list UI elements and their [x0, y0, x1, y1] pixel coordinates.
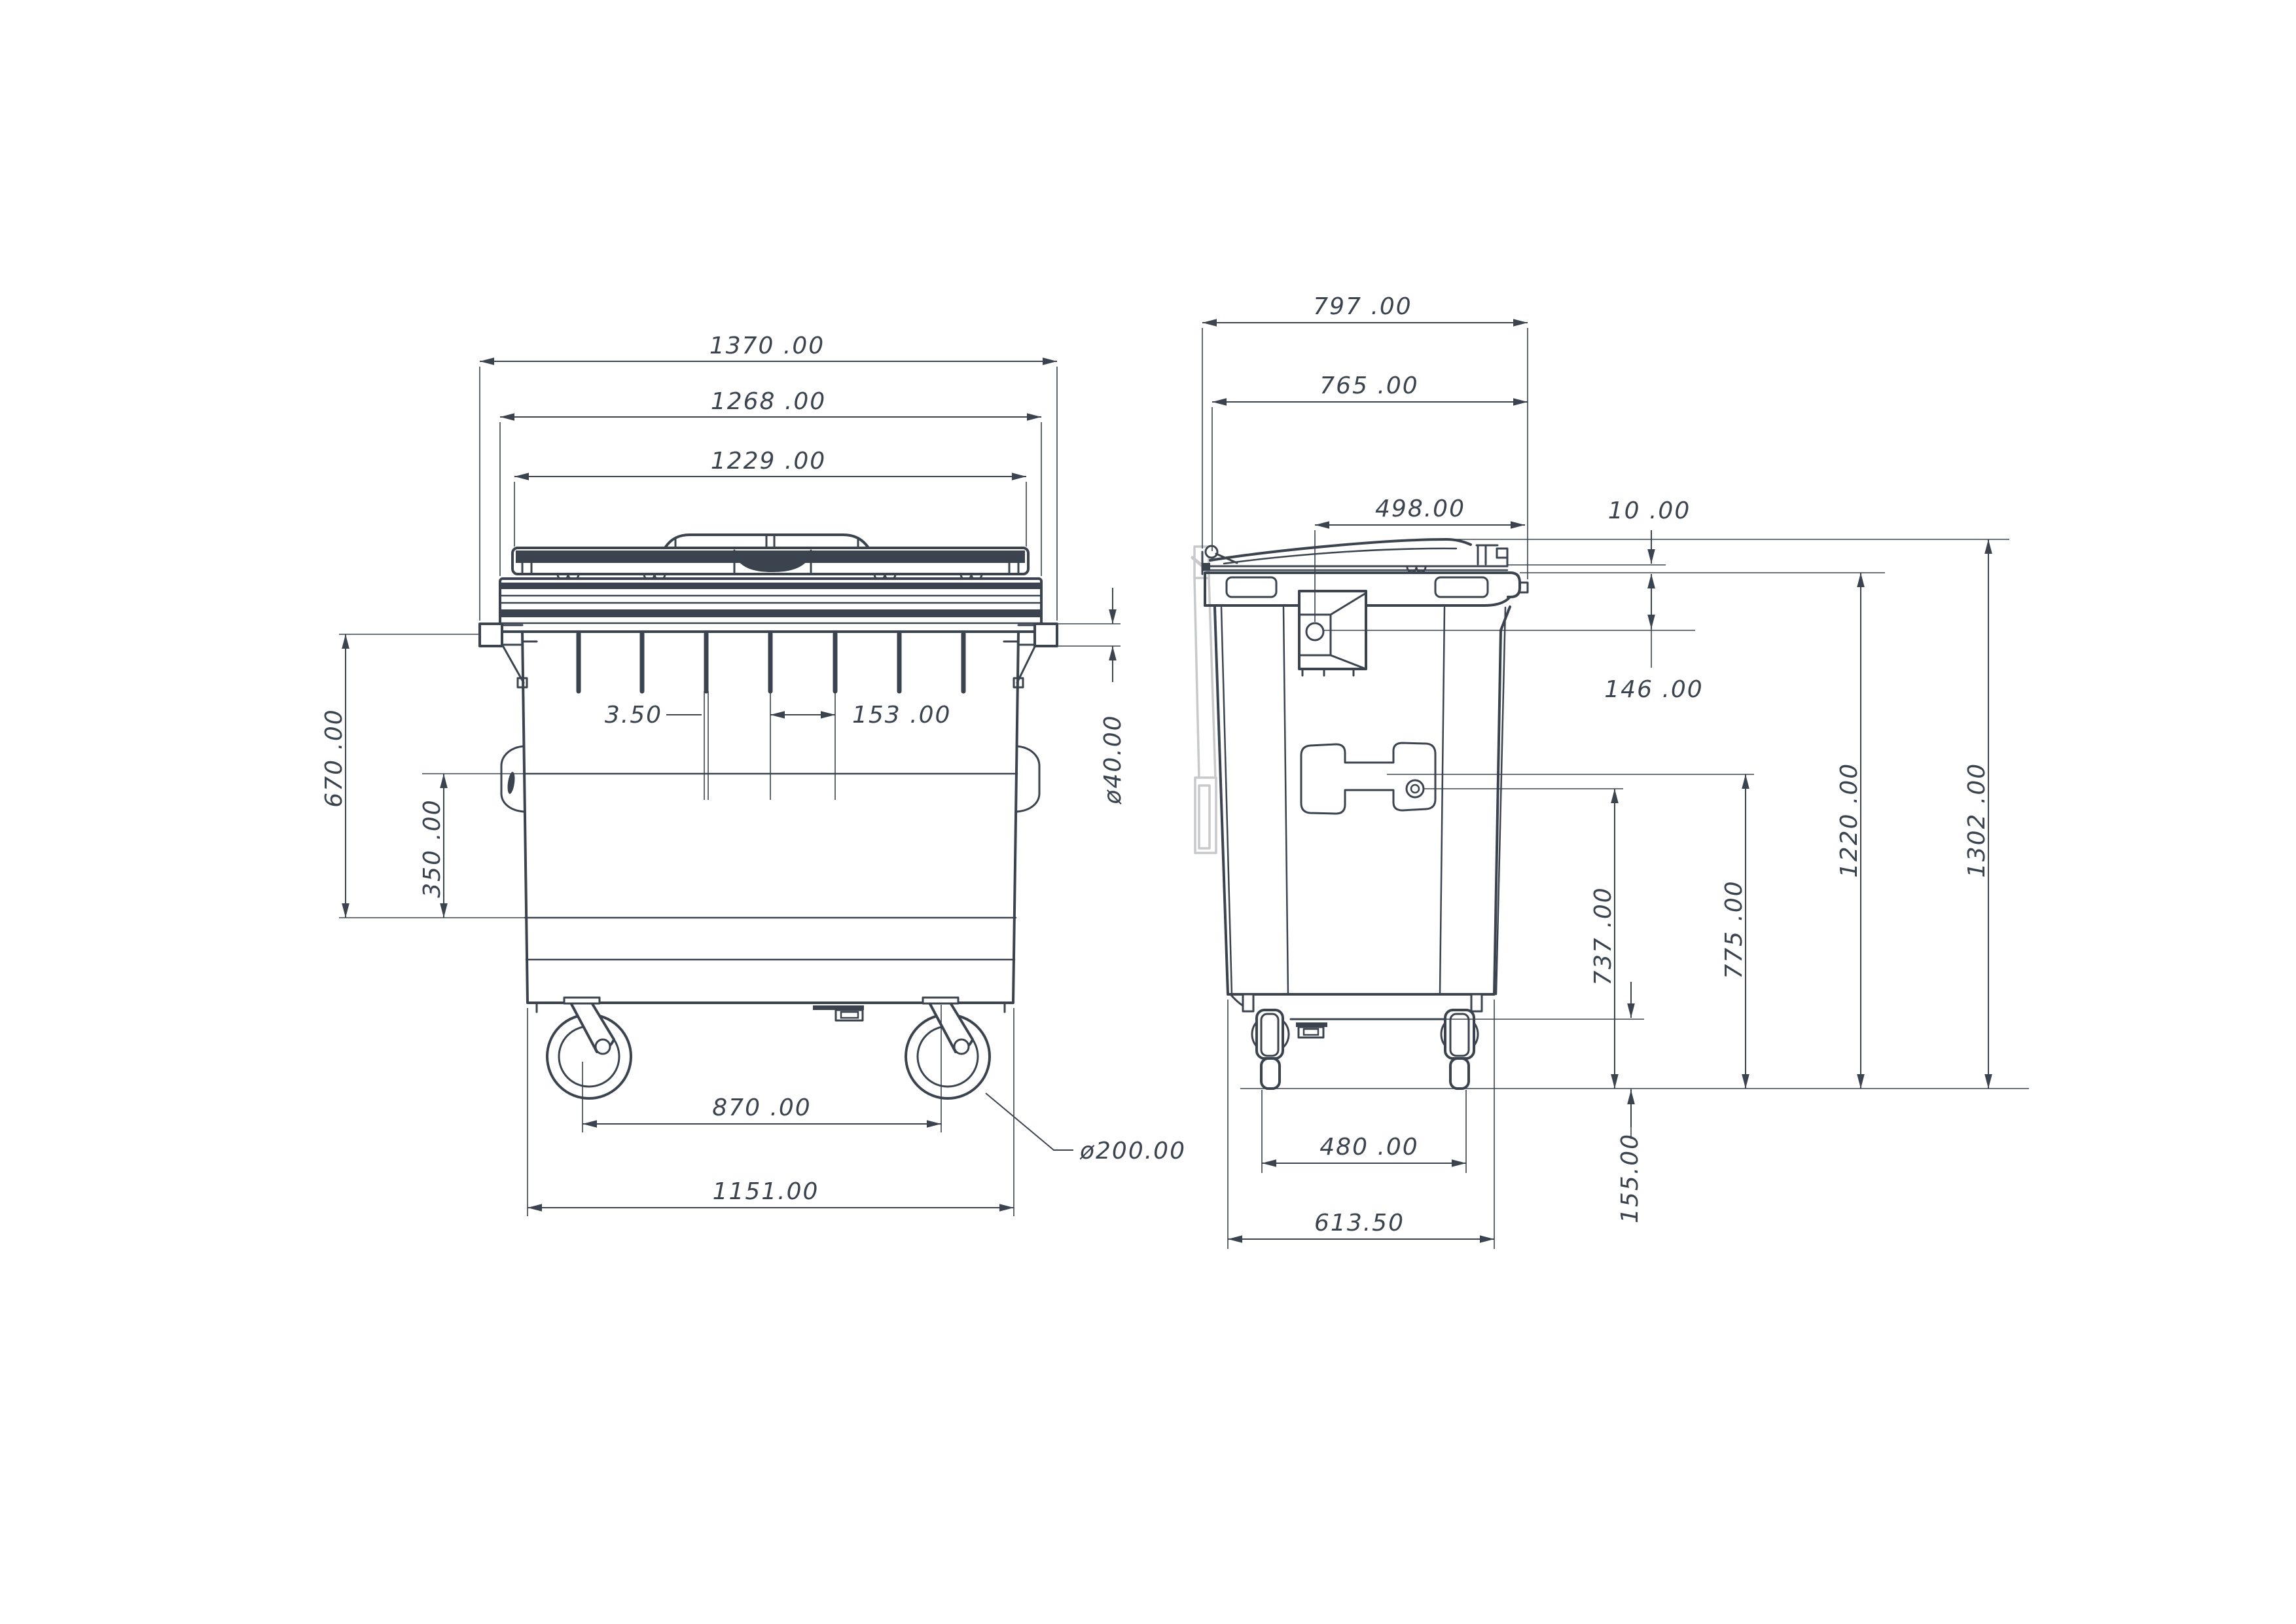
- dim-label-670: 670 .00: [321, 708, 348, 807]
- dim-label-1220: 1220 .00: [1836, 763, 1863, 878]
- trunnion-bar-right: [1014, 624, 1057, 687]
- caster-left: [1243, 994, 1289, 1089]
- lid-handle-hump: [665, 535, 869, 548]
- bottom-latch: [813, 1005, 864, 1020]
- dim-label-146: 146 .00: [1604, 676, 1703, 703]
- dim-label-155: 155.00: [1617, 1133, 1643, 1223]
- dim-label-1268: 1268 .00: [711, 388, 826, 415]
- dim-label-870: 870 .00: [712, 1094, 811, 1121]
- comb-step: [1296, 1022, 1327, 1038]
- caster-right: [1441, 994, 1482, 1089]
- trunnion-bar-left: [480, 624, 527, 687]
- dim-label-153: 153 .00: [852, 702, 951, 729]
- dim-label-10: 10 .00: [1608, 497, 1691, 524]
- wheel-front-right: [906, 998, 990, 1098]
- dim-label-737: 737 .00: [1590, 886, 1617, 985]
- dim-label-775: 775 .00: [1721, 880, 1748, 979]
- rim: [500, 579, 1041, 632]
- dim-label-797: 797 .00: [1313, 293, 1412, 320]
- drawing-canvas: 1370 .00 1268 .00 1229 .00 670 .00 350 .…: [0, 0, 2296, 1624]
- dim-label-480: 480 .00: [1319, 1134, 1418, 1161]
- side-lid: [1202, 539, 1507, 574]
- lift-pocket: [1299, 591, 1366, 676]
- dim-label-765: 765 .00: [1319, 372, 1418, 399]
- lid-hinge-knob: [1206, 546, 1217, 558]
- dim-label-350: 350 .00: [419, 799, 446, 897]
- side-lift-plate: [1301, 743, 1435, 814]
- dim-label-o40: ø40.00: [1100, 714, 1126, 804]
- side-view: 797 .00 765 .00 498.00 10 .00 146 .00 73…: [1193, 293, 2029, 1249]
- dim-label-o200: ø200.00: [1079, 1138, 1186, 1164]
- rib-extension-lines: [704, 691, 835, 800]
- dim-label-613: 613.50: [1314, 1210, 1405, 1236]
- side-dimensions: 797 .00 765 .00 498.00 10 .00 146 .00 73…: [1202, 293, 1990, 1249]
- dim-label-1370: 1370 .00: [709, 333, 825, 359]
- body-ribs: [579, 634, 963, 691]
- lid: [512, 548, 1028, 574]
- dim-label-498: 498.00: [1375, 496, 1465, 522]
- dim-label-1302: 1302 .00: [1964, 763, 1990, 878]
- front-view: 1370 .00 1268 .00 1229 .00 670 .00 350 .…: [321, 333, 1186, 1216]
- wheel-front-left: [547, 998, 631, 1098]
- dim-label-1151: 1151.00: [713, 1178, 819, 1205]
- dim-label-3-50: 3.50: [605, 702, 662, 729]
- dim-label-1229: 1229 .00: [711, 448, 826, 475]
